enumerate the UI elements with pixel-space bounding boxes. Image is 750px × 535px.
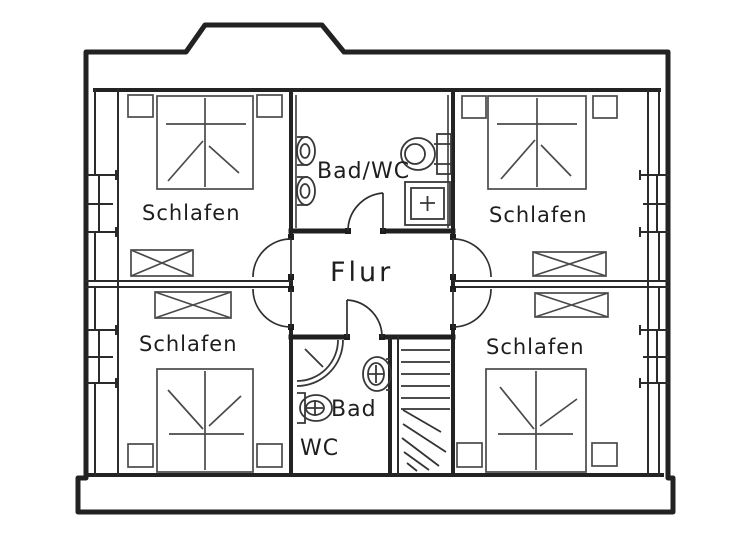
room-label-bedroom-top-left: Schlafen: [142, 201, 241, 225]
room-label-bedroom-top-right: Schlafen: [489, 203, 588, 227]
floor-plan-drawing: Schlafen Schlafen Schlafen: [0, 0, 750, 535]
room-label-bathroom-top: Bad/WC: [317, 159, 410, 184]
shower-icon: [405, 182, 450, 225]
room-label-bedroom-bottom-left: Schlafen: [139, 332, 238, 356]
room-label-bathroom-bottom-line1: Bad: [331, 397, 377, 422]
floor-plan-page: Schlafen Schlafen Schlafen: [0, 0, 750, 535]
room-hallway: Flur: [330, 257, 393, 288]
room-label-hallway: Flur: [330, 257, 393, 288]
room-label-bedroom-bottom-right: Schlafen: [486, 335, 585, 359]
room-label-bathroom-bottom-line2: WC: [300, 436, 339, 461]
